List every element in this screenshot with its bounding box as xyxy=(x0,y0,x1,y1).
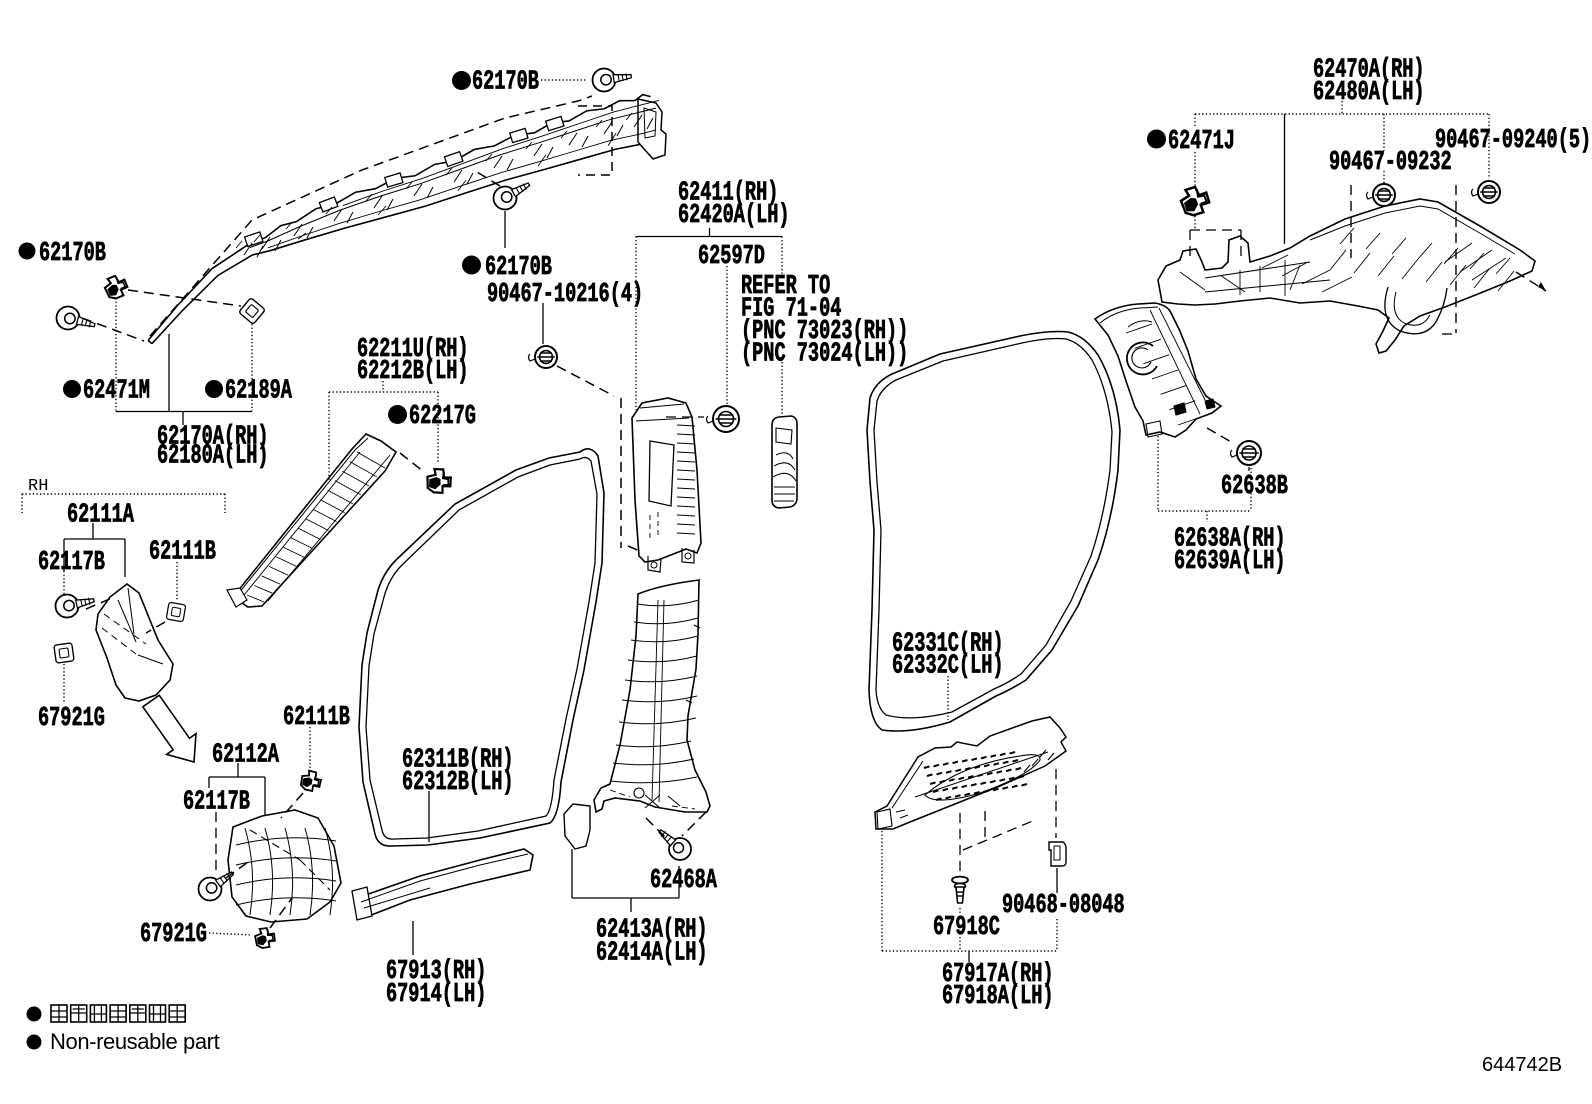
svg-text:62117B: 62117B xyxy=(38,547,105,577)
svg-text:62217G: 62217G xyxy=(409,401,476,431)
svg-text:62111A: 62111A xyxy=(67,499,134,529)
svg-text:62180A(LH): 62180A(LH) xyxy=(157,440,269,470)
svg-text:90467-09232: 90467-09232 xyxy=(1329,147,1452,177)
svg-text:(PNC 73024(LH)): (PNC 73024(LH)) xyxy=(741,338,908,368)
svg-text:644742B: 644742B xyxy=(1482,1054,1562,1076)
svg-text:67918C: 67918C xyxy=(933,912,1000,942)
svg-text:62170B: 62170B xyxy=(39,238,106,268)
svg-text:62212B(LH): 62212B(LH) xyxy=(357,356,469,386)
svg-text:62414A(LH): 62414A(LH) xyxy=(596,937,708,967)
svg-text:RH: RH xyxy=(28,477,48,496)
svg-text:90467-09240(5): 90467-09240(5) xyxy=(1435,125,1591,155)
svg-text:67921G: 67921G xyxy=(38,703,105,733)
svg-text:62480A(LH): 62480A(LH) xyxy=(1313,77,1425,107)
svg-text:Non-reusable part: Non-reusable part xyxy=(50,1029,220,1054)
svg-text:62471M: 62471M xyxy=(83,375,150,405)
svg-text:62420A(LH): 62420A(LH) xyxy=(678,200,790,230)
svg-text:62170B: 62170B xyxy=(485,252,552,282)
svg-text:67918A(LH): 67918A(LH) xyxy=(942,981,1054,1011)
svg-text:62189A: 62189A xyxy=(225,375,292,405)
svg-text:62111B: 62111B xyxy=(283,702,350,732)
svg-text:62639A(LH): 62639A(LH) xyxy=(1174,546,1286,576)
svg-text:62638B: 62638B xyxy=(1221,471,1288,501)
svg-text:90467-10216(4): 90467-10216(4) xyxy=(487,279,643,309)
svg-text:62111B: 62111B xyxy=(149,536,216,566)
svg-text:62597D: 62597D xyxy=(698,241,765,271)
svg-text:62468A: 62468A xyxy=(650,865,717,895)
svg-text:62471J: 62471J xyxy=(1168,126,1235,156)
svg-text:62112A: 62112A xyxy=(212,739,279,769)
svg-text:67914(LH): 67914(LH) xyxy=(386,979,486,1009)
svg-text:67921G: 67921G xyxy=(140,919,207,949)
svg-text:90468-08048: 90468-08048 xyxy=(1002,890,1125,920)
svg-text:62312B(LH): 62312B(LH) xyxy=(402,767,514,797)
svg-text:62170B: 62170B xyxy=(472,66,539,96)
